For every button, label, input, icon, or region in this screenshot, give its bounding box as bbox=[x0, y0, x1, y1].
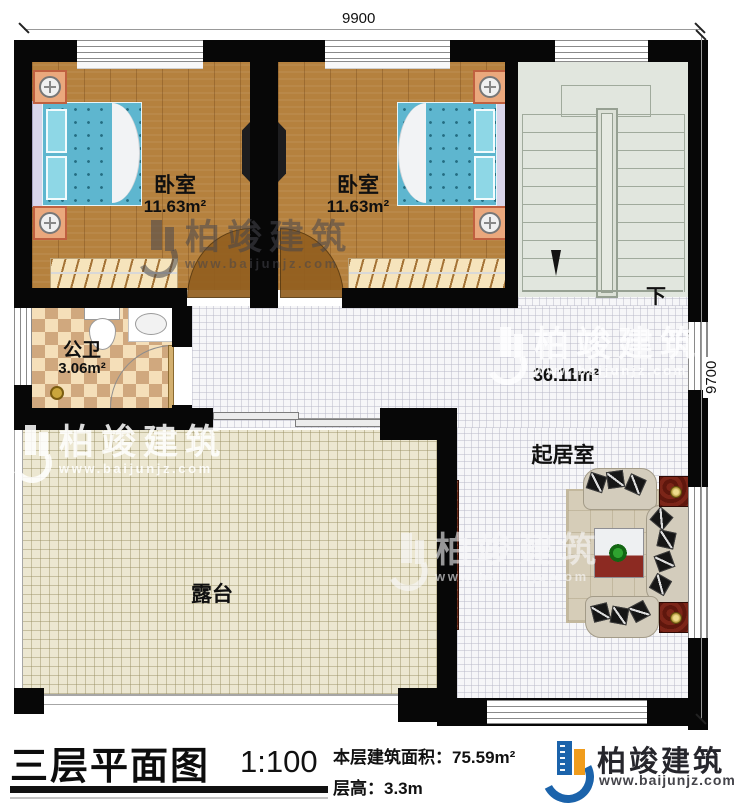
bathroom-door-leaf bbox=[168, 345, 174, 409]
lamp-icon bbox=[39, 212, 61, 234]
nightstand-left-bottom bbox=[33, 206, 67, 240]
drawing-scale: 1:100 bbox=[240, 744, 318, 780]
bedroom-left-label: 卧室 bbox=[130, 174, 220, 198]
wall bbox=[14, 408, 213, 430]
bed-right-pillow-1 bbox=[474, 109, 495, 153]
tv-bedroom-right bbox=[278, 122, 286, 182]
bathroom-label: 公卫 bbox=[42, 340, 122, 362]
sliding-door-panel-2 bbox=[295, 419, 381, 427]
side-table-bottom bbox=[659, 602, 691, 633]
floor-height-value: 3.3m bbox=[384, 779, 423, 798]
stair-center-railing bbox=[596, 108, 618, 298]
wall bbox=[688, 390, 708, 487]
sofa-pillow bbox=[656, 529, 676, 549]
floor-plan-sheet: 下 bbox=[0, 0, 750, 806]
window-right-sofa bbox=[688, 487, 708, 638]
floor-area-label: 本层建筑面积： bbox=[333, 748, 452, 767]
dimension-tick bbox=[18, 22, 29, 33]
stair-flight-right bbox=[613, 114, 685, 292]
lamp-icon bbox=[479, 212, 501, 234]
stair-down-arrow bbox=[551, 250, 561, 276]
living-room-label: 起居室 bbox=[518, 444, 608, 468]
terrace-label: 露台 bbox=[172, 583, 252, 607]
title-underline-thin bbox=[10, 797, 328, 799]
lamp-icon bbox=[479, 76, 501, 98]
wall bbox=[505, 62, 518, 302]
stair-center-railing-inner bbox=[601, 113, 613, 293]
nightstand-left-top bbox=[33, 70, 67, 104]
dimension-right-value: 9700 bbox=[703, 357, 720, 398]
table-knob-icon bbox=[670, 612, 682, 624]
wardrobe-left bbox=[50, 258, 178, 290]
bedroom-right-area: 11.63m² bbox=[308, 197, 408, 217]
window-bottom-living bbox=[487, 700, 647, 724]
wall bbox=[450, 40, 555, 62]
floor-height-line: 层高：3.3m bbox=[333, 774, 423, 799]
bed-left-pillow-2 bbox=[46, 156, 67, 200]
sheet-title: 三层平面图 bbox=[10, 735, 210, 790]
terrace-floor bbox=[22, 430, 437, 694]
floor-drain bbox=[50, 386, 64, 400]
dimension-line-right bbox=[701, 36, 702, 720]
side-table-top bbox=[659, 476, 691, 507]
wall bbox=[250, 62, 278, 308]
window-top-bedroom-left bbox=[77, 40, 203, 62]
wall bbox=[342, 288, 518, 308]
window-top-stairs bbox=[555, 40, 648, 62]
coffee-table-plant bbox=[608, 543, 628, 563]
curtain-right-window bbox=[325, 62, 450, 69]
wall bbox=[14, 40, 32, 308]
wall bbox=[380, 408, 437, 440]
terrace-railing-bottom bbox=[21, 694, 431, 705]
brand-logo-icon bbox=[540, 739, 594, 795]
dimension-line-top bbox=[24, 29, 700, 30]
bathroom-area: 3.06m² bbox=[38, 360, 126, 377]
living-room-area: 36.11m² bbox=[520, 365, 612, 386]
sliding-door-panel-1 bbox=[213, 412, 299, 420]
wall bbox=[437, 408, 457, 708]
table-knob-icon bbox=[670, 486, 682, 498]
wall bbox=[172, 306, 192, 347]
bed-right-pillow-2 bbox=[474, 156, 495, 200]
title-underline-thick bbox=[10, 786, 328, 793]
bedroom-right-label: 卧室 bbox=[313, 174, 403, 198]
wall bbox=[14, 288, 187, 308]
terrace-post-sw bbox=[14, 688, 44, 714]
terrace-post-se bbox=[398, 688, 438, 722]
sink-basin bbox=[135, 313, 167, 335]
floor-area-line: 本层建筑面积：75.59m² bbox=[333, 743, 515, 768]
stair-down-label: 下 bbox=[642, 286, 670, 309]
floor-height-label: 层高： bbox=[333, 779, 384, 798]
brand-url: www.baijunjz.com bbox=[599, 772, 736, 788]
bed-left-pillow-1 bbox=[46, 109, 67, 153]
window-bathroom-left bbox=[14, 308, 32, 385]
lamp-icon bbox=[39, 76, 61, 98]
nightstand-right-top bbox=[473, 70, 507, 104]
dimension-top-value: 9900 bbox=[338, 10, 379, 27]
wall bbox=[688, 40, 708, 322]
wardrobe-right bbox=[348, 258, 506, 290]
sofa-pillow bbox=[610, 606, 630, 626]
bedroom-left-area: 11.63m² bbox=[125, 197, 225, 217]
sofa-pillow bbox=[606, 470, 625, 489]
curtain-left-window bbox=[77, 62, 203, 69]
floor-area-value: 75.59m² bbox=[452, 748, 515, 767]
terrace-railing-left bbox=[14, 428, 23, 694]
tv-bedroom-left bbox=[242, 122, 250, 182]
wall bbox=[203, 40, 325, 62]
window-top-bedroom-right bbox=[325, 40, 450, 62]
nightstand-right-bottom bbox=[473, 206, 507, 240]
